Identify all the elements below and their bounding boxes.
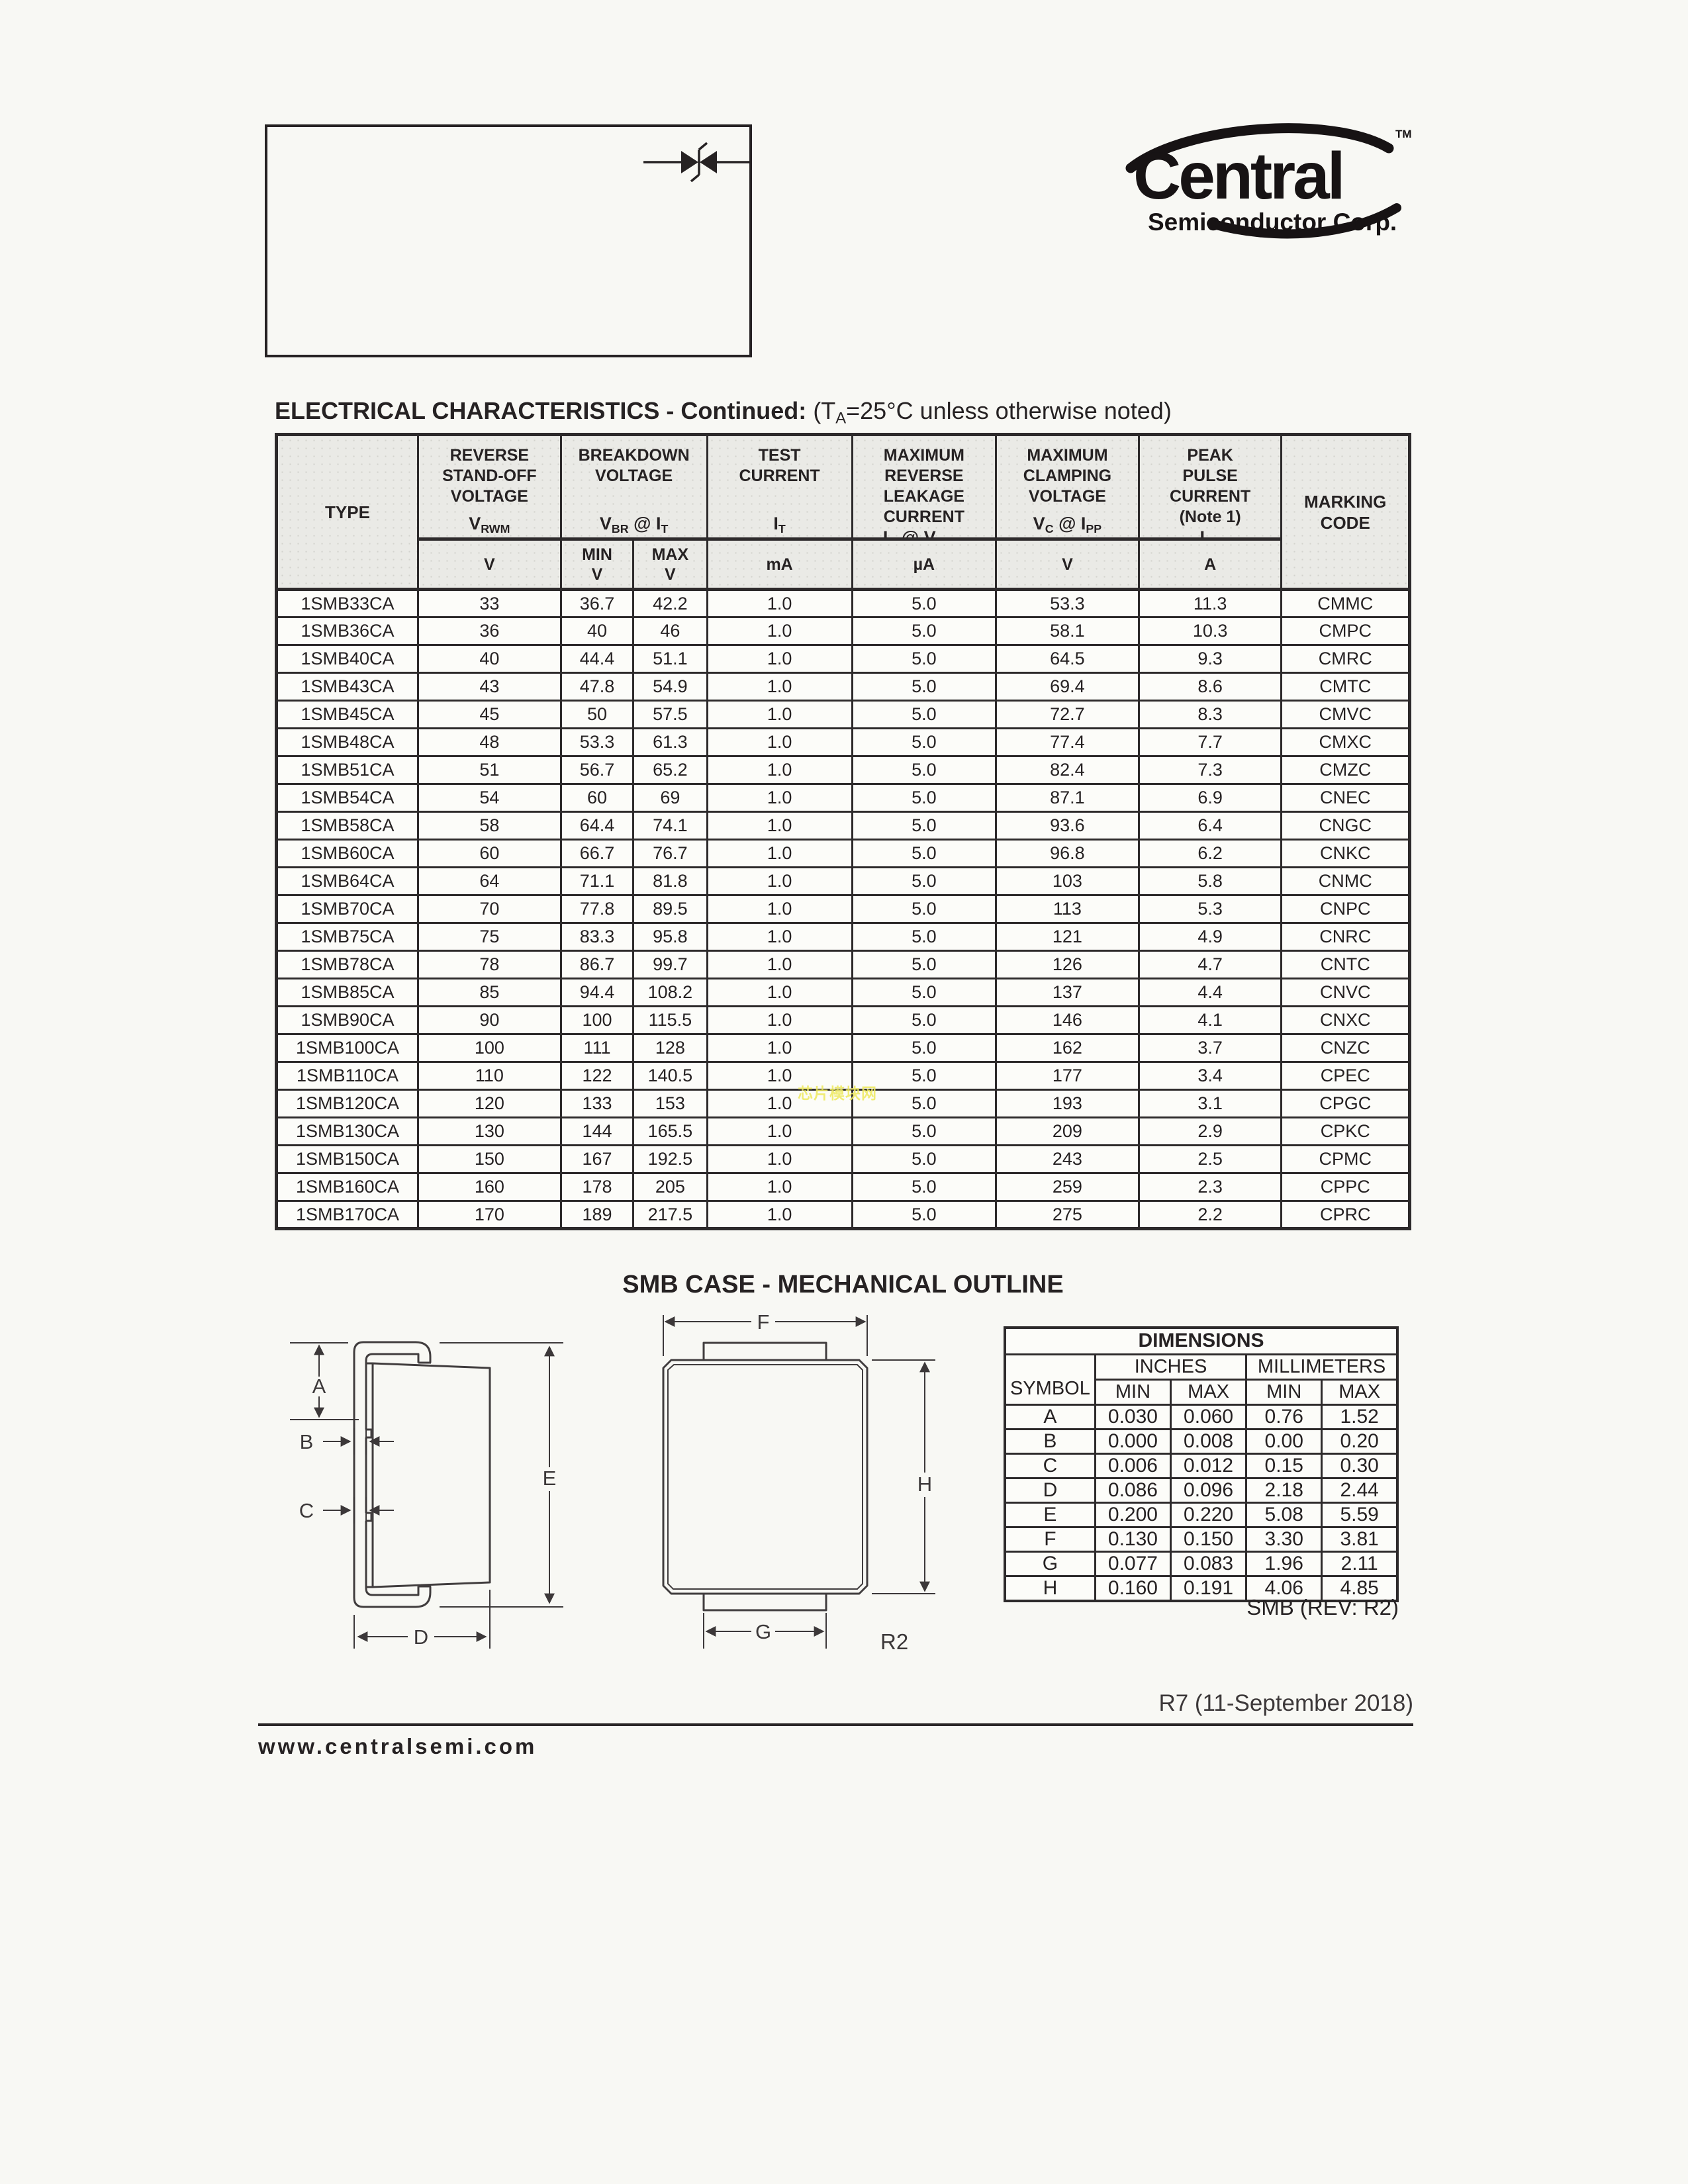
value-cell: 133: [561, 1090, 633, 1118]
dimension-value-cell: 5.08: [1246, 1502, 1322, 1527]
dimension-value-cell: 0.008: [1171, 1429, 1246, 1453]
value-cell: 113: [996, 895, 1139, 923]
value-cell: 5.0: [852, 1034, 996, 1062]
dimension-row: A0.0300.0600.761.52: [1005, 1404, 1397, 1429]
inches-min-header: MIN: [1095, 1379, 1170, 1404]
dimension-value-cell: 0.086: [1095, 1478, 1170, 1502]
value-cell: 61.3: [633, 729, 707, 756]
value-cell: 94.4: [561, 979, 633, 1007]
electrical-row: 1SMB70CA7077.889.51.05.01135.3CNPC: [277, 895, 1410, 923]
unit-header: mA: [707, 539, 852, 590]
value-cell: 5.0: [852, 1007, 996, 1034]
dimension-row: C0.0060.0120.150.30: [1005, 1453, 1397, 1478]
symbol-cell: E: [1005, 1502, 1095, 1527]
value-cell: CPKC: [1282, 1118, 1410, 1146]
electrical-row: 1SMB45CA455057.51.05.072.78.3CMVC: [277, 701, 1410, 729]
value-cell: 100: [418, 1034, 561, 1062]
value-cell: 11.3: [1139, 590, 1282, 617]
value-cell: 43: [418, 673, 561, 701]
value-cell: 146: [996, 1007, 1139, 1034]
value-cell: 209: [996, 1118, 1139, 1146]
value-cell: 122: [561, 1062, 633, 1090]
value-cell: 5.8: [1139, 868, 1282, 895]
value-cell: 4.7: [1139, 951, 1282, 979]
value-cell: 150: [418, 1146, 561, 1173]
symbol-cell: C: [1005, 1453, 1095, 1478]
value-cell: 275: [996, 1201, 1139, 1229]
col-header: BREAKDOWNVOLTAGEVBR @ IT: [561, 435, 707, 539]
value-cell: 1.0: [707, 840, 852, 868]
value-cell: 126: [996, 951, 1139, 979]
value-cell: 58.1: [996, 617, 1139, 645]
dim-label-c: C: [299, 1499, 314, 1522]
value-cell: 5.0: [852, 1118, 996, 1146]
value-cell: CNTC: [1282, 951, 1410, 979]
part-number-cell: 1SMB130CA: [277, 1118, 418, 1146]
value-cell: CPEC: [1282, 1062, 1410, 1090]
value-cell: CNEC: [1282, 784, 1410, 812]
value-cell: CMRC: [1282, 645, 1410, 673]
logo-trademark: TM: [1395, 128, 1412, 140]
electrical-row: 1SMB120CA1201331531.05.01933.1CPGC: [277, 1090, 1410, 1118]
value-cell: 95.8: [633, 923, 707, 951]
symbol-cell: B: [1005, 1429, 1095, 1453]
value-cell: 64.5: [996, 645, 1139, 673]
part-number-cell: 1SMB54CA: [277, 784, 418, 812]
part-number-cell: 1SMB36CA: [277, 617, 418, 645]
value-cell: CPRC: [1282, 1201, 1410, 1229]
part-number-cell: 1SMB60CA: [277, 840, 418, 868]
part-number-cell: 1SMB48CA: [277, 729, 418, 756]
section-heading: ELECTRICAL CHARACTERISTICS - Continued: …: [275, 397, 1172, 425]
value-cell: 4.4: [1139, 979, 1282, 1007]
section-heading-note: (TA=25°C unless otherwise noted): [813, 397, 1172, 424]
value-cell: 42.2: [633, 590, 707, 617]
dimension-value-cell: 0.15: [1246, 1453, 1322, 1478]
value-cell: 120: [418, 1090, 561, 1118]
dimension-value-cell: 5.59: [1322, 1502, 1397, 1527]
symbol-cell: A: [1005, 1404, 1095, 1429]
value-cell: 4.9: [1139, 923, 1282, 951]
value-cell: 54.9: [633, 673, 707, 701]
value-cell: 4.1: [1139, 1007, 1282, 1034]
col-header: MAXIMUMCLAMPINGVOLTAGEVC @ IPP: [996, 435, 1139, 539]
website-text: www.centralsemi.com: [258, 1734, 537, 1759]
value-cell: 2.9: [1139, 1118, 1282, 1146]
dimension-value-cell: 0.030: [1095, 1404, 1170, 1429]
value-cell: 83.3: [561, 923, 633, 951]
value-cell: 1.0: [707, 729, 852, 756]
value-cell: 1.0: [707, 1173, 852, 1201]
value-cell: 100: [561, 1007, 633, 1034]
value-cell: 259: [996, 1173, 1139, 1201]
dimensions-title: DIMENSIONS: [1005, 1328, 1397, 1354]
value-cell: 36.7: [561, 590, 633, 617]
dimension-value-cell: 0.20: [1322, 1429, 1397, 1453]
electrical-row: 1SMB85CA8594.4108.21.05.01374.4CNVC: [277, 979, 1410, 1007]
part-number-cell: 1SMB40CA: [277, 645, 418, 673]
electrical-table-body: 1SMB33CA3336.742.21.05.053.311.3CMMC1SMB…: [277, 590, 1410, 1229]
part-number-cell: 1SMB90CA: [277, 1007, 418, 1034]
side-view-drawing: A B C D E: [285, 1330, 569, 1655]
value-cell: 5.0: [852, 840, 996, 868]
dimension-row: F0.1300.1503.303.81: [1005, 1527, 1397, 1551]
value-cell: 8.6: [1139, 673, 1282, 701]
dimension-value-cell: 0.130: [1095, 1527, 1170, 1551]
dimension-value-cell: 0.200: [1095, 1502, 1170, 1527]
dim-label-e: E: [543, 1467, 557, 1490]
dimension-value-cell: 2.11: [1322, 1551, 1397, 1576]
dimension-value-cell: 0.077: [1095, 1551, 1170, 1576]
dimension-value-cell: 1.52: [1322, 1404, 1397, 1429]
value-cell: 103: [996, 868, 1139, 895]
value-cell: 60: [418, 840, 561, 868]
central-semiconductor-logo: Central TM Semiconductor Corp.: [1117, 111, 1422, 240]
value-cell: 99.7: [633, 951, 707, 979]
value-cell: 3.4: [1139, 1062, 1282, 1090]
part-number-cell: 1SMB64CA: [277, 868, 418, 895]
col-header-marking: MARKINGCODE: [1282, 435, 1410, 590]
value-cell: 46: [633, 617, 707, 645]
value-cell: 140.5: [633, 1062, 707, 1090]
dimensions-table-body: A0.0300.0600.761.52B0.0000.0080.000.20C0…: [1005, 1404, 1397, 1601]
symbol-col-header: SYMBOL: [1005, 1354, 1095, 1404]
value-cell: 1.0: [707, 868, 852, 895]
part-number-cell: 1SMB45CA: [277, 701, 418, 729]
value-cell: CNZC: [1282, 1034, 1410, 1062]
value-cell: 1.0: [707, 979, 852, 1007]
value-cell: 40: [418, 645, 561, 673]
unit-header: µA: [852, 539, 996, 590]
value-cell: 108.2: [633, 979, 707, 1007]
value-cell: 144: [561, 1118, 633, 1146]
electrical-row: 1SMB54CA5460691.05.087.16.9CNEC: [277, 784, 1410, 812]
part-number-cell: 1SMB75CA: [277, 923, 418, 951]
value-cell: 64: [418, 868, 561, 895]
value-cell: CNKC: [1282, 840, 1410, 868]
dimension-value-cell: 0.220: [1171, 1502, 1246, 1527]
value-cell: 1.0: [707, 1146, 852, 1173]
col-header: REVERSESTAND-OFFVOLTAGEVRWM: [418, 435, 561, 539]
value-cell: 70: [418, 895, 561, 923]
value-cell: 192.5: [633, 1146, 707, 1173]
value-cell: 1.0: [707, 784, 852, 812]
electrical-row: 1SMB100CA1001111281.05.01623.7CNZC: [277, 1034, 1410, 1062]
electrical-row: 1SMB40CA4044.451.11.05.064.59.3CMRC: [277, 645, 1410, 673]
value-cell: 1.0: [707, 1034, 852, 1062]
value-cell: 1.0: [707, 1090, 852, 1118]
value-cell: 1.0: [707, 1007, 852, 1034]
value-cell: 58: [418, 812, 561, 840]
dim-label-d: D: [414, 1625, 428, 1649]
part-number-cell: 1SMB58CA: [277, 812, 418, 840]
value-cell: 5.0: [852, 784, 996, 812]
value-cell: 71.1: [561, 868, 633, 895]
value-cell: 48: [418, 729, 561, 756]
value-cell: 5.3: [1139, 895, 1282, 923]
value-cell: 5.0: [852, 756, 996, 784]
value-cell: 110: [418, 1062, 561, 1090]
value-cell: 3.1: [1139, 1090, 1282, 1118]
unit-header: MAXV: [633, 539, 707, 590]
part-number-cell: 1SMB100CA: [277, 1034, 418, 1062]
value-cell: 5.0: [852, 1090, 996, 1118]
value-cell: 1.0: [707, 923, 852, 951]
value-cell: 72.7: [996, 701, 1139, 729]
value-cell: 115.5: [633, 1007, 707, 1034]
part-number-cell: 1SMB85CA: [277, 979, 418, 1007]
electrical-row: 1SMB60CA6066.776.71.05.096.86.2CNKC: [277, 840, 1410, 868]
logo-brand-text: Central: [1133, 139, 1343, 213]
value-cell: 167: [561, 1146, 633, 1173]
value-cell: CNMC: [1282, 868, 1410, 895]
dimension-value-cell: 0.00: [1246, 1429, 1322, 1453]
dimension-value-cell: 0.30: [1322, 1453, 1397, 1478]
part-number-cell: 1SMB33CA: [277, 590, 418, 617]
dimension-row: B0.0000.0080.000.20: [1005, 1429, 1397, 1453]
bidirectional-tvs-symbol: [643, 142, 752, 183]
value-cell: CPMC: [1282, 1146, 1410, 1173]
value-cell: CPPC: [1282, 1173, 1410, 1201]
value-cell: 47.8: [561, 673, 633, 701]
package-rev-note: SMB (REV: R2): [1004, 1595, 1399, 1620]
value-cell: 86.7: [561, 951, 633, 979]
dim-label-a: A: [312, 1375, 326, 1398]
value-cell: CMVC: [1282, 701, 1410, 729]
value-cell: 162: [996, 1034, 1139, 1062]
value-cell: 165.5: [633, 1118, 707, 1146]
electrical-row: 1SMB48CA4853.361.31.05.077.47.7CMXC: [277, 729, 1410, 756]
value-cell: 111: [561, 1034, 633, 1062]
value-cell: 78: [418, 951, 561, 979]
value-cell: 90: [418, 1007, 561, 1034]
value-cell: 1.0: [707, 617, 852, 645]
value-cell: 3.7: [1139, 1034, 1282, 1062]
value-cell: 1.0: [707, 645, 852, 673]
value-cell: 51: [418, 756, 561, 784]
unit-header: MINV: [561, 539, 633, 590]
part-number-cell: 1SMB70CA: [277, 895, 418, 923]
col-header: MAXIMUMREVERSELEAKAGECURRENTIR @ VRWM: [852, 435, 996, 539]
eth-units-row: VMINVMAXVmAµAVA: [277, 539, 1410, 590]
unit-header: V: [996, 539, 1139, 590]
value-cell: 76.7: [633, 840, 707, 868]
electrical-row: 1SMB110CA110122140.51.05.01773.4CPEC: [277, 1062, 1410, 1090]
value-cell: 1.0: [707, 756, 852, 784]
value-cell: 5.0: [852, 923, 996, 951]
value-cell: 1.0: [707, 1201, 852, 1229]
value-cell: 6.4: [1139, 812, 1282, 840]
value-cell: 5.0: [852, 590, 996, 617]
part-number-cell: 1SMB110CA: [277, 1062, 418, 1090]
value-cell: 64.4: [561, 812, 633, 840]
package-front-outline: [663, 1343, 867, 1610]
value-cell: CNVC: [1282, 979, 1410, 1007]
eth-titles-row: TYPEREVERSESTAND-OFFVOLTAGEVRWMBREAKDOWN…: [277, 435, 1410, 539]
value-cell: 81.8: [633, 868, 707, 895]
dimension-row: E0.2000.2205.085.59: [1005, 1502, 1397, 1527]
value-cell: 177: [996, 1062, 1139, 1090]
value-cell: 44.4: [561, 645, 633, 673]
value-cell: 69.4: [996, 673, 1139, 701]
electrical-row: 1SMB130CA130144165.51.05.02092.9CPKC: [277, 1118, 1410, 1146]
col-header-type: TYPE: [277, 435, 418, 590]
corner-radius-note: R2: [880, 1629, 908, 1655]
part-number-cell: 1SMB160CA: [277, 1173, 418, 1201]
dim-label-h: H: [917, 1473, 932, 1496]
part-number-cell: 1SMB150CA: [277, 1146, 418, 1173]
dimension-value-cell: 0.150: [1171, 1527, 1246, 1551]
value-cell: 5.0: [852, 1146, 996, 1173]
dimension-row: G0.0770.0831.962.11: [1005, 1551, 1397, 1576]
electrical-row: 1SMB160CA1601782051.05.02592.3CPPC: [277, 1173, 1410, 1201]
value-cell: 217.5: [633, 1201, 707, 1229]
value-cell: 1.0: [707, 590, 852, 617]
part-number-cell: 1SMB120CA: [277, 1090, 418, 1118]
value-cell: 121: [996, 923, 1139, 951]
dimension-value-cell: 0.012: [1171, 1453, 1246, 1478]
value-cell: 189: [561, 1201, 633, 1229]
value-cell: 1.0: [707, 951, 852, 979]
value-cell: 178: [561, 1173, 633, 1201]
dimension-value-cell: 2.44: [1322, 1478, 1397, 1502]
value-cell: 5.0: [852, 729, 996, 756]
value-cell: 5.0: [852, 645, 996, 673]
value-cell: CMXC: [1282, 729, 1410, 756]
electrical-characteristics-table: TYPEREVERSESTAND-OFFVOLTAGEVRWMBREAKDOWN…: [275, 433, 1411, 1230]
value-cell: 85: [418, 979, 561, 1007]
value-cell: CPGC: [1282, 1090, 1410, 1118]
value-cell: 75: [418, 923, 561, 951]
value-cell: 53.3: [996, 590, 1139, 617]
value-cell: 205: [633, 1173, 707, 1201]
electrical-row: 1SMB78CA7886.799.71.05.01264.7CNTC: [277, 951, 1410, 979]
value-cell: 5.0: [852, 951, 996, 979]
millimeters-group-header: MILLIMETERS: [1246, 1354, 1397, 1379]
dimension-value-cell: 1.96: [1246, 1551, 1322, 1576]
section-heading-bold: ELECTRICAL CHARACTERISTICS - Continued:: [275, 397, 806, 424]
electrical-row: 1SMB150CA150167192.51.05.02432.5CPMC: [277, 1146, 1410, 1173]
value-cell: 170: [418, 1201, 561, 1229]
value-cell: 7.3: [1139, 756, 1282, 784]
electrical-row: 1SMB33CA3336.742.21.05.053.311.3CMMC: [277, 590, 1410, 617]
value-cell: CNPC: [1282, 895, 1410, 923]
unit-header: V: [418, 539, 561, 590]
electrical-row: 1SMB90CA90100115.51.05.01464.1CNXC: [277, 1007, 1410, 1034]
value-cell: 2.2: [1139, 1201, 1282, 1229]
value-cell: 153: [633, 1090, 707, 1118]
value-cell: 69: [633, 784, 707, 812]
value-cell: 89.5: [633, 895, 707, 923]
mm-min-header: MIN: [1246, 1379, 1322, 1404]
value-cell: 9.3: [1139, 645, 1282, 673]
value-cell: 5.0: [852, 979, 996, 1007]
value-cell: 82.4: [996, 756, 1139, 784]
value-cell: 1.0: [707, 1118, 852, 1146]
electrical-row: 1SMB43CA4347.854.91.05.069.48.6CMTC: [277, 673, 1410, 701]
value-cell: 5.0: [852, 1173, 996, 1201]
col-header: TESTCURRENTIT: [707, 435, 852, 539]
value-cell: 66.7: [561, 840, 633, 868]
value-cell: CMTC: [1282, 673, 1410, 701]
electrical-row: 1SMB64CA6471.181.81.05.01035.8CNMC: [277, 868, 1410, 895]
electrical-row: 1SMB36CA3640461.05.058.110.3CMPC: [277, 617, 1410, 645]
value-cell: 65.2: [633, 756, 707, 784]
electrical-row: 1SMB51CA5156.765.21.05.082.47.3CMZC: [277, 756, 1410, 784]
dim-label-g: G: [755, 1620, 771, 1643]
value-cell: 128: [633, 1034, 707, 1062]
value-cell: 1.0: [707, 812, 852, 840]
revision-date: R7 (11-September 2018): [923, 1690, 1413, 1717]
value-cell: CMZC: [1282, 756, 1410, 784]
dimensions-table: DIMENSIONS SYMBOL INCHES MILLIMETERS MIN…: [1004, 1326, 1399, 1602]
value-cell: 5.0: [852, 701, 996, 729]
value-cell: 243: [996, 1146, 1139, 1173]
value-cell: CNRC: [1282, 923, 1410, 951]
electrical-row: 1SMB75CA7583.395.81.05.01214.9CNRC: [277, 923, 1410, 951]
value-cell: 1.0: [707, 701, 852, 729]
value-cell: 87.1: [996, 784, 1139, 812]
value-cell: 160: [418, 1173, 561, 1201]
dimension-value-cell: 0.76: [1246, 1404, 1322, 1429]
value-cell: 40: [561, 617, 633, 645]
value-cell: CNXC: [1282, 1007, 1410, 1034]
value-cell: 8.3: [1139, 701, 1282, 729]
value-cell: 2.3: [1139, 1173, 1282, 1201]
value-cell: 1.0: [707, 895, 852, 923]
value-cell: 45: [418, 701, 561, 729]
part-number-cell: 1SMB51CA: [277, 756, 418, 784]
part-number-cell: 1SMB43CA: [277, 673, 418, 701]
value-cell: CMPC: [1282, 617, 1410, 645]
value-cell: 2.5: [1139, 1146, 1282, 1173]
dim-label-f: F: [757, 1310, 770, 1334]
value-cell: 74.1: [633, 812, 707, 840]
dimension-value-cell: 3.30: [1246, 1527, 1322, 1551]
footer-divider: [258, 1723, 1413, 1726]
package-side-outline: [354, 1342, 490, 1607]
electrical-row: 1SMB58CA5864.474.11.05.093.66.4CNGC: [277, 812, 1410, 840]
value-cell: 5.0: [852, 1201, 996, 1229]
part-number-cell: 1SMB78CA: [277, 951, 418, 979]
value-cell: 137: [996, 979, 1139, 1007]
mm-max-header: MAX: [1322, 1379, 1397, 1404]
inches-max-header: MAX: [1171, 1379, 1246, 1404]
value-cell: 96.8: [996, 840, 1139, 868]
inches-group-header: INCHES: [1095, 1354, 1246, 1379]
dimension-value-cell: 0.006: [1095, 1453, 1170, 1478]
value-cell: 5.0: [852, 617, 996, 645]
dimension-value-cell: 0.060: [1171, 1404, 1246, 1429]
dimension-value-cell: 0.083: [1171, 1551, 1246, 1576]
value-cell: 5.0: [852, 673, 996, 701]
value-cell: CMMC: [1282, 590, 1410, 617]
col-header: PEAKPULSECURRENT(Note 1)IPP: [1139, 435, 1282, 539]
dimension-value-cell: 0.096: [1171, 1478, 1246, 1502]
value-cell: 53.3: [561, 729, 633, 756]
dimension-value-cell: 0.000: [1095, 1429, 1170, 1453]
value-cell: 7.7: [1139, 729, 1282, 756]
logo-subtitle: Semiconductor Corp.: [1148, 208, 1397, 236]
value-cell: 57.5: [633, 701, 707, 729]
dimension-row: D0.0860.0962.182.44: [1005, 1478, 1397, 1502]
value-cell: 77.8: [561, 895, 633, 923]
electrical-row: 1SMB170CA170189217.51.05.02752.2CPRC: [277, 1201, 1410, 1229]
value-cell: 5.0: [852, 812, 996, 840]
symbol-cell: G: [1005, 1551, 1095, 1576]
dimension-value-cell: 2.18: [1246, 1478, 1322, 1502]
value-cell: 36: [418, 617, 561, 645]
